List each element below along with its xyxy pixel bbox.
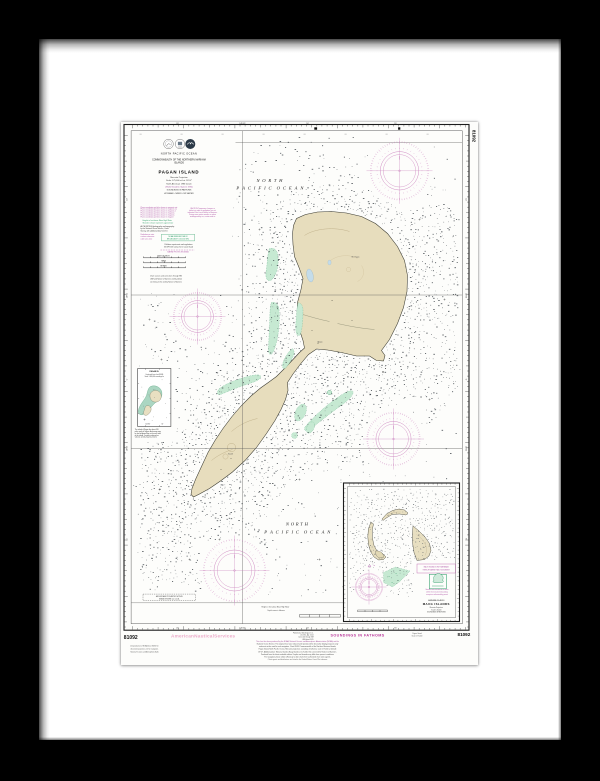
svg-text:81092: 81092 [124,635,138,641]
svg-text:145°40′: 145°40′ [146,424,151,426]
svg-text:Chart agents and distributors: Chart agents and distributors are listed… [268,658,328,661]
svg-text:Mercator Projection: Mercator Projection [170,176,187,179]
svg-text:BROADCASTS 162.550 MHz: BROADCASTS 162.550 MHz [167,238,189,241]
svg-text:see listing in the weekly Noti: see listing in the weekly Notice to Mari… [150,281,182,284]
svg-text:P A C I F I C O C E A N: P A C I F I C O C E A N [263,529,331,534]
svg-text:Pagan Island, North Pacific Oc: Pagan Island, North Pacific Ocean, Merca… [259,648,337,651]
svg-text:Mt. Pagan: Mt. Pagan [352,256,360,259]
svg-text:Shoreline shown represents app: Shoreline shown represents approximate [143,221,174,224]
svg-text:Scale 1:25,000: Scale 1:25,000 [431,609,441,611]
svg-text:Apaan: Apaan [318,341,323,344]
svg-text:National Ocean Service. The or: National Ocean Service. The original cha… [257,643,339,646]
svg-text:N O R T H: N O R T H [285,522,309,527]
svg-text:PAGAN ISLAND: PAGAN ISLAND [159,170,200,175]
svg-text:MAUG ISLANDS: MAUG ISLANDS [423,602,450,606]
svg-text:Chart sources and corrections: Chart sources and corrections through NM [150,275,182,278]
svg-text:COMMONWEALTH OF THE NORTHERN M: COMMONWEALTH OF THE NORTHERN MARIANA [152,159,206,162]
svg-text:145°45': 145°45' [239,123,246,125]
svg-text:AT MEAN LOWER LOW WATER: AT MEAN LOWER LOW WATER [164,192,194,195]
svg-text:145°45': 145°45' [239,628,246,630]
svg-text:ISLANDS: ISLANDS [174,162,184,165]
svg-text:Scale 1:75,000 at Lat. 18°07′: Scale 1:75,000 at Lat. 18°07′ [166,179,192,182]
svg-text:endangered by ice, certain aid: endangered by ice, certain aids to [190,215,215,218]
svg-text:Produced from the latest avail: Produced from the latest available editi… [261,653,335,656]
svg-text:LNM and Notice to Mariners wee: LNM and Notice to Mariners weekly editio… [150,278,182,281]
svg-text:18°00': 18°00' [465,446,467,452]
svg-text:81092: 81092 [458,632,471,637]
svg-text:Scale 1:75,000: Scale 1:75,000 [412,636,423,638]
svg-text:SOUNDINGS IN FATHOMS: SOUNDINGS IN FATHOMS [167,189,192,192]
svg-text:N O R T H: N O R T H [256,178,284,183]
svg-text:AmericanNauticalServices: AmericanNauticalServices [171,633,235,638]
svg-text:33 CFR 153 Contact U.S. Coast: 33 CFR 153 Contact U.S. Coast Guard [164,245,193,248]
svg-text:Pagan Island: Pagan Island [412,633,421,635]
svg-text:P A C I F I C O C E A N: P A C I F I C O C E A N [235,186,304,191]
svg-text:Survey, with additional data f: Survey, with additional data from the [141,229,168,232]
svg-text:North American 1983 Datum: North American 1983 Datum [166,182,192,185]
svg-text:METERS: METERS [160,266,166,268]
svg-text:NORTH PACIFIC OCEAN: NORTH PACIFIC OCEAN [161,153,197,156]
svg-text:SOUNDINGS IN FATHOMS: SOUNDINGS IN FATHOMS [331,633,385,637]
svg-text:Scale 1:300,000 soundings fm: Scale 1:300,000 soundings fm [145,376,165,378]
svg-text:(World Geodetic System 1984): (World Geodetic System 1984) [165,186,193,189]
svg-text:18°05': 18°05' [126,292,128,298]
svg-text:18°00': 18°00' [126,445,128,451]
svg-text:81092: 81092 [471,130,476,143]
svg-text:PAGAN IS.: PAGAN IS. [150,370,160,373]
svg-text:cable area note: cable area note [141,237,153,240]
svg-text:South: South [228,453,233,456]
svg-text:18°05': 18°05' [465,293,467,299]
svg-text:Plane coordinate grid ticks sh: Plane coordinate grid ticks shown in mag… [141,215,175,218]
